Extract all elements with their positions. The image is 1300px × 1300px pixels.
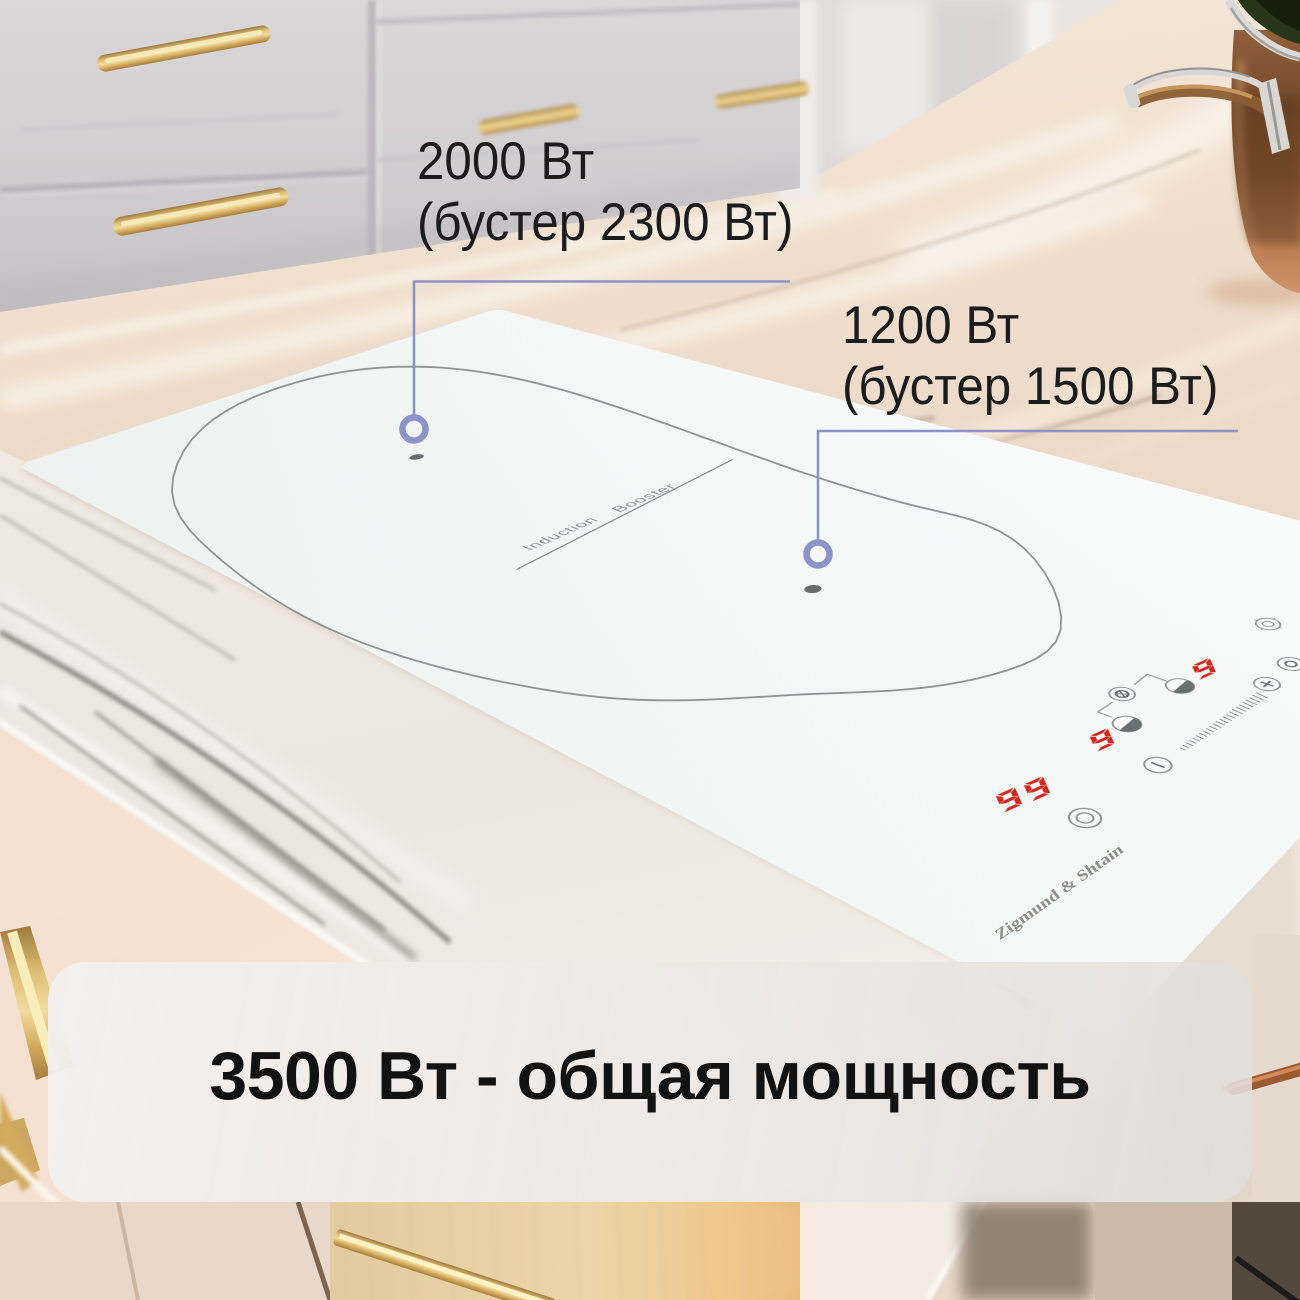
svg-text:Booster: Booster: [608, 482, 681, 514]
svg-text:Zigmund & Shtain: Zigmund & Shtain: [992, 840, 1127, 943]
